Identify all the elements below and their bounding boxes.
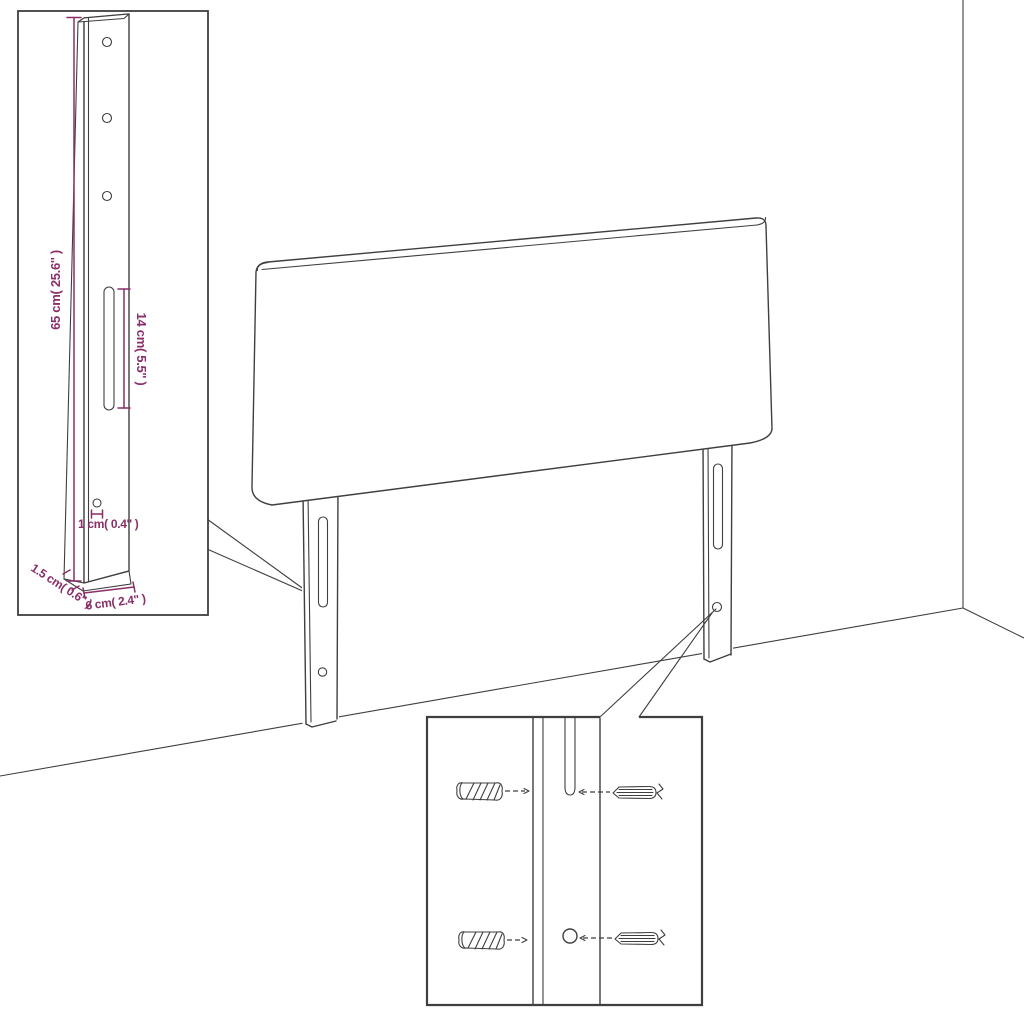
leader-lines-bottom-inset — [600, 609, 716, 717]
dimension-label-hole-diameter: 1 cm( 0.4'' ) — [78, 517, 139, 531]
headboard-left-leg — [302, 488, 339, 728]
floor-line-right — [963, 608, 1024, 638]
leg-detail-inset: 65 cm( 25.6'' ) 14 cm( 5.5'' ) 1 cm( 0.4… — [18, 11, 208, 615]
leader-line — [600, 609, 716, 717]
leader-line — [639, 613, 712, 717]
right-leg-right-edge — [731, 435, 732, 655]
leader-lines-top-inset — [207, 519, 305, 592]
dimension-label-leg-height: 65 cm( 25.6'' ) — [48, 250, 63, 330]
headboard-panel — [252, 218, 772, 506]
leader-line — [207, 549, 305, 592]
headboard-assembly-diagram: 65 cm( 25.6'' ) 14 cm( 5.5'' ) 1 cm( 0.4… — [0, 0, 1024, 1024]
dimension-label-slot-length: 14 cm( 5.5'' ) — [134, 313, 149, 386]
leg-front-face — [84, 14, 129, 583]
screw-detail-inset — [427, 717, 702, 1005]
headboard-outline — [252, 218, 772, 505]
left-leg-body — [302, 488, 339, 728]
leader-line — [207, 519, 305, 590]
headboard-right-leg — [702, 434, 733, 662]
page: { "diagram": { "colors": { "background":… — [0, 0, 1024, 1024]
right-leg-body — [702, 434, 733, 662]
